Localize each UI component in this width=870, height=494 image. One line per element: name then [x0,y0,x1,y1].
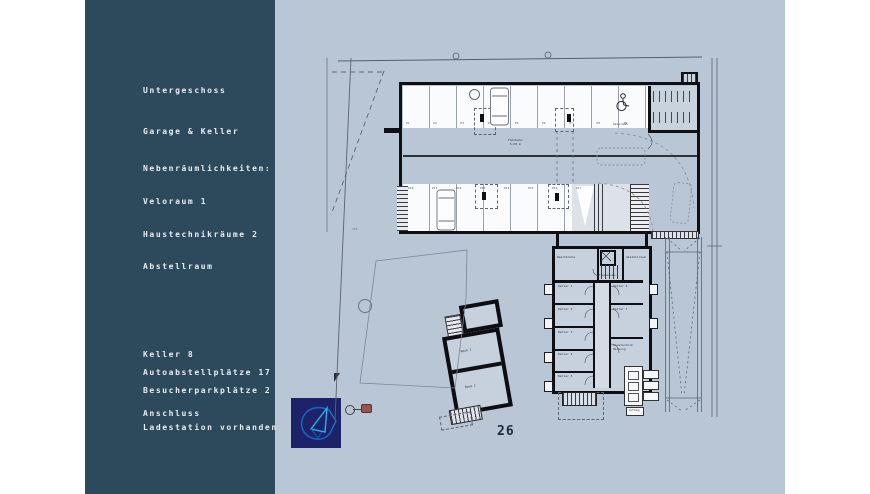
light-well [544,318,553,329]
stall-label: P7 [569,121,573,125]
parking-row-top [403,86,648,128]
column [480,114,484,122]
stall-label: P2 [433,121,437,125]
column [555,193,559,201]
vent-module [628,393,639,402]
wall [555,280,643,283]
cellar-corridor [595,282,609,388]
drain-circle [469,89,480,100]
company-logo [291,398,341,448]
room-label: Treppenhaus [599,274,616,277]
garage-stair-right [630,184,649,231]
hydrant-icon [361,404,372,413]
wall [556,234,559,246]
room-label: Keller 2 [558,308,572,312]
room-label: Keller 6 [613,285,627,289]
stall-label: P10 [408,186,413,190]
wall [555,303,595,305]
room-label: Keller 1 [558,285,572,289]
stall-label: P13 [480,186,485,190]
stall-label: P12 [456,186,461,190]
survey-number: 758 [352,228,357,232]
external-zone [439,411,473,430]
elevator [600,250,616,266]
ramp-treads [594,184,604,231]
stall-label: P1 [406,121,410,125]
room-label: Keller 3 [558,331,572,335]
floor-plan: Fahrbahn 6.00 m P1P2P3P4P5P6P7P8P9 P10P1… [0,0,870,494]
wall [555,371,595,373]
wall [648,130,697,133]
column-zone [474,108,496,135]
stall-label: P16 [552,186,557,190]
light-well [544,284,553,295]
wall [384,128,400,133]
wall [555,349,595,351]
ventilation-unit [624,366,643,406]
stall-label: P6 [542,121,546,125]
light-well [649,284,658,295]
light-well [649,318,658,329]
light-shaft [681,72,698,84]
garage-door-threshold [651,231,699,239]
bike-racks-row [653,112,695,123]
existing-building: Raum 1 Raum 2 [437,299,519,426]
column-zone [475,184,498,209]
wall [622,249,624,280]
ramp-arrow-icon [576,186,594,226]
stall-label: P17 [576,186,581,190]
garage-stair-west [397,186,408,231]
stall-label: P11 [432,186,437,190]
room-label: Veloraum [613,123,627,127]
wall [609,282,611,388]
duct [643,392,659,401]
survey-point [358,299,372,313]
bird-logo-icon [291,398,341,448]
bike-room [651,86,697,130]
aisle-sublabel: 6.00 m [508,143,522,147]
column [482,192,486,200]
stall-label: P8 [596,121,600,125]
stall-label: P15 [528,186,533,190]
stall-label: P3 [460,121,464,125]
ramp-strip [572,184,630,231]
external-stair [562,392,597,406]
stall-label: P14 [504,186,509,190]
stall-label: P5 [515,121,519,125]
room-label: Abstellraum [626,256,646,260]
bike-racks-row [653,91,695,102]
wall [555,326,595,328]
stall-label: P4 [488,121,492,125]
room-label: Heizung [613,348,626,352]
vent-module [628,371,639,380]
room-label: Waschküche [557,256,575,260]
survey-point [345,405,355,415]
vent-module [628,382,639,391]
room-label: Keller 7 [613,308,627,312]
wall [648,86,651,133]
room-label: Keller 5 [558,375,572,379]
wall [609,303,643,305]
duct [643,370,659,379]
wall [609,337,643,339]
equipment-label: Lüftung [629,409,640,412]
wall [645,234,648,246]
column-zone [555,108,574,132]
duct [643,381,659,390]
wall [593,282,595,388]
light-well [544,352,553,363]
light-well [544,381,553,392]
tie-line [353,409,361,410]
page-number: 26 [497,424,515,439]
room-label: Keller 4 [558,353,572,357]
north-marker [334,373,340,382]
